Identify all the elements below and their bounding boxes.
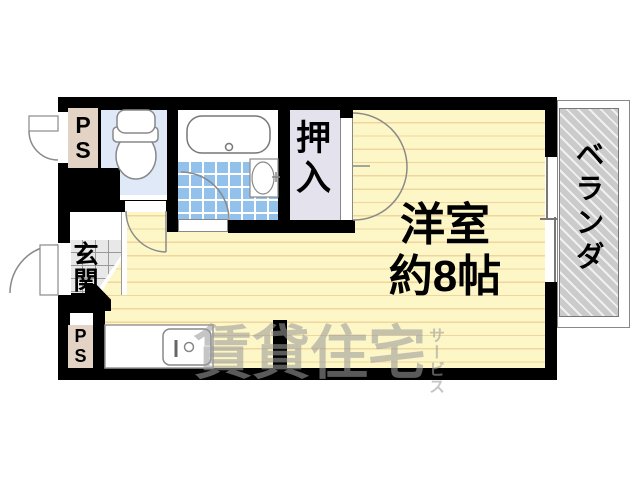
- ps-door-leaf: [29, 116, 58, 131]
- toilet-door-arc: [126, 211, 166, 252]
- kitchen-sink-drain: [185, 343, 194, 352]
- fixtures-and-doors: [0, 0, 640, 480]
- main-room-name: 洋室: [350, 199, 540, 251]
- ps-door-arc: [29, 131, 58, 160]
- entrance-door-leaf: [40, 245, 58, 295]
- closet-label: 押入: [293, 119, 328, 199]
- main-room-label: 洋室 約8帖: [350, 199, 540, 303]
- entrance-label: 玄関: [71, 241, 96, 293]
- bathroom-door-arc: [181, 172, 229, 220]
- closet-door-upper-arc: [353, 113, 407, 167]
- main-room-size: 約8帖: [350, 251, 540, 303]
- floor-plan: P S P S ベランダ: [0, 0, 640, 480]
- bathtub-drain: [226, 144, 233, 151]
- wash-basin-bowl: [252, 162, 274, 194]
- toilet-tank: [117, 110, 155, 133]
